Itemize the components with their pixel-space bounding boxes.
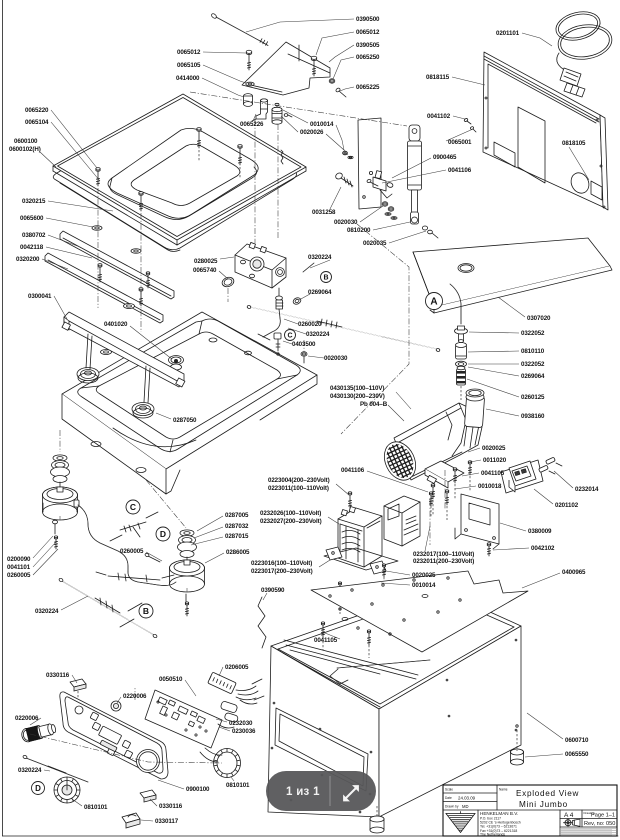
svg-text:0232026(100–110Volt): 0232026(100–110Volt) xyxy=(260,510,321,517)
svg-text:0286005: 0286005 xyxy=(226,549,250,556)
svg-text:0201102: 0201102 xyxy=(555,502,579,509)
svg-text:C: C xyxy=(287,333,292,340)
svg-text:0600102(H): 0600102(H) xyxy=(9,146,41,153)
svg-text:0220006: 0220006 xyxy=(123,693,147,700)
svg-text:0041105: 0041105 xyxy=(481,470,505,477)
svg-text:0232030: 0232030 xyxy=(229,720,253,727)
svg-text:0320200: 0320200 xyxy=(16,256,40,263)
svg-text:0232014: 0232014 xyxy=(575,486,599,493)
svg-text:0065001: 0065001 xyxy=(448,139,472,146)
svg-text:C: C xyxy=(130,502,136,512)
svg-text:0330116: 0330116 xyxy=(159,803,183,810)
svg-text:0010014: 0010014 xyxy=(412,582,436,589)
svg-text:0287032: 0287032 xyxy=(225,523,249,530)
svg-text:24.03.09: 24.03.09 xyxy=(458,796,476,801)
svg-text:0042118: 0042118 xyxy=(20,244,44,251)
svg-text:0260005: 0260005 xyxy=(7,572,31,579)
svg-text:0232027(200–230Volt): 0232027(200–230Volt) xyxy=(260,518,322,525)
svg-text:HENKELMAN B.V.: HENKELMAN B.V. xyxy=(480,811,518,816)
svg-text:0260125: 0260125 xyxy=(521,394,545,401)
svg-text:0011020: 0011020 xyxy=(483,457,507,464)
svg-text:0041101: 0041101 xyxy=(7,564,31,571)
svg-text:0223017(200–230Volt): 0223017(200–230Volt) xyxy=(251,568,313,575)
svg-text:0041105: 0041105 xyxy=(314,637,338,644)
svg-text:0065105: 0065105 xyxy=(177,62,201,69)
svg-text:Page 1–1: Page 1–1 xyxy=(591,813,615,819)
svg-text:0810110: 0810110 xyxy=(521,348,545,355)
svg-text:Exploded View: Exploded View xyxy=(516,789,579,798)
svg-text:0414000: 0414000 xyxy=(176,75,200,82)
svg-text:0287005: 0287005 xyxy=(225,512,249,519)
svg-text:0810101: 0810101 xyxy=(84,804,108,811)
svg-text:0320224: 0320224 xyxy=(306,331,330,338)
svg-text:0818115: 0818115 xyxy=(426,74,450,81)
svg-text:0041106: 0041106 xyxy=(448,167,472,174)
svg-text:0900465: 0900465 xyxy=(433,154,457,161)
svg-text:0065104: 0065104 xyxy=(25,119,49,126)
svg-text:0232011(200–230Volt): 0232011(200–230Volt) xyxy=(413,558,474,565)
svg-text:0010018: 0010018 xyxy=(478,483,502,490)
svg-text:MD: MD xyxy=(462,804,469,809)
svg-text:0600100: 0600100 xyxy=(14,138,38,145)
svg-text:0041106: 0041106 xyxy=(341,467,365,474)
svg-text:0065740: 0065740 xyxy=(193,267,217,274)
svg-text:0201101: 0201101 xyxy=(496,30,520,37)
svg-text:0810101: 0810101 xyxy=(226,782,250,789)
svg-text:0020026: 0020026 xyxy=(300,129,324,136)
svg-text:D: D xyxy=(160,529,166,539)
svg-text:0260020: 0260020 xyxy=(298,321,322,328)
svg-text:0403500: 0403500 xyxy=(292,341,316,348)
svg-text:The Netherlands: The Netherlands xyxy=(480,832,505,836)
svg-text:0330117: 0330117 xyxy=(155,818,179,825)
svg-text:0322052: 0322052 xyxy=(521,330,545,337)
svg-text:0320224: 0320224 xyxy=(308,254,332,261)
svg-text:0065012: 0065012 xyxy=(177,49,201,56)
svg-text:Name: Name xyxy=(499,788,508,792)
svg-text:0220006: 0220006 xyxy=(15,715,39,722)
svg-text:Rev, no: 050: Rev, no: 050 xyxy=(584,821,615,827)
svg-text:0065225: 0065225 xyxy=(356,84,380,91)
svg-text:0269064: 0269064 xyxy=(521,373,545,380)
svg-text:0020025: 0020025 xyxy=(412,572,436,579)
svg-text:0818105: 0818105 xyxy=(562,140,586,147)
svg-text:0269064: 0269064 xyxy=(308,289,332,296)
svg-text:0020035: 0020035 xyxy=(363,240,387,247)
svg-text:Scale: Scale xyxy=(445,788,453,792)
svg-text:0430130(200–230V): 0430130(200–230V) xyxy=(330,393,385,400)
svg-text:A 4: A 4 xyxy=(564,812,574,819)
svg-text:0232017(100–110Volt): 0232017(100–110Volt) xyxy=(413,551,474,558)
svg-text:0065600: 0065600 xyxy=(20,215,44,222)
svg-text:Pb 004–B: Pb 004–B xyxy=(360,401,388,408)
svg-text:0020030: 0020030 xyxy=(334,219,358,226)
svg-text:0020025: 0020025 xyxy=(482,445,506,452)
svg-text:0400965: 0400965 xyxy=(562,569,586,576)
svg-text:0320224: 0320224 xyxy=(18,767,42,774)
svg-text:0260005: 0260005 xyxy=(120,548,144,555)
svg-text:0206005: 0206005 xyxy=(225,664,249,671)
svg-text:0380009: 0380009 xyxy=(528,528,552,535)
svg-text:0320215: 0320215 xyxy=(22,198,46,205)
svg-text:D: D xyxy=(35,784,41,793)
svg-text:Date: Date xyxy=(445,796,452,800)
svg-text:0322052: 0322052 xyxy=(521,361,545,368)
svg-text:B: B xyxy=(143,606,149,616)
svg-text:0065012: 0065012 xyxy=(356,29,380,36)
svg-text:0401020: 0401020 xyxy=(104,321,128,328)
svg-text:0900100: 0900100 xyxy=(186,786,210,793)
svg-text:0390590: 0390590 xyxy=(261,587,285,594)
svg-text:0200090: 0200090 xyxy=(7,556,31,563)
svg-text:0300041: 0300041 xyxy=(28,293,52,300)
svg-text:0320224: 0320224 xyxy=(35,608,59,615)
svg-text:0330116: 0330116 xyxy=(46,672,70,679)
svg-text:0380702: 0380702 xyxy=(22,232,46,239)
svg-text:0050510: 0050510 xyxy=(159,676,183,683)
svg-text:0223004(200–230Volt): 0223004(200–230Volt) xyxy=(268,477,330,484)
svg-text:0042102: 0042102 xyxy=(531,545,555,552)
svg-text:0287050: 0287050 xyxy=(173,417,197,424)
svg-text:0223011(100–110Volt): 0223011(100–110Volt) xyxy=(268,485,329,492)
svg-text:B: B xyxy=(323,275,328,282)
svg-text:1 из 1: 1 из 1 xyxy=(286,786,320,798)
svg-text:Mini Jumbo: Mini Jumbo xyxy=(519,800,568,809)
svg-text:0287015: 0287015 xyxy=(225,533,249,540)
svg-text:0280025: 0280025 xyxy=(194,258,218,265)
svg-text:0390505: 0390505 xyxy=(356,42,380,49)
svg-text:0065220: 0065220 xyxy=(25,107,49,114)
svg-text:0810200: 0810200 xyxy=(347,227,371,234)
svg-text:0065550: 0065550 xyxy=(565,751,589,758)
svg-text:0031258: 0031258 xyxy=(312,209,336,216)
svg-text:0230036: 0230036 xyxy=(232,728,256,735)
svg-text:0430135(100–110V): 0430135(100–110V) xyxy=(330,385,384,392)
svg-text:0041102: 0041102 xyxy=(427,113,451,120)
svg-text:0010014: 0010014 xyxy=(310,121,334,128)
svg-text:0938160: 0938160 xyxy=(521,413,545,420)
svg-text:0390500: 0390500 xyxy=(356,16,380,23)
svg-text:A: A xyxy=(430,297,437,308)
svg-text:0020030: 0020030 xyxy=(324,355,348,362)
svg-text:0065226: 0065226 xyxy=(240,121,264,128)
svg-text:0600710: 0600710 xyxy=(565,737,589,744)
svg-text:Drawn by: Drawn by xyxy=(445,805,459,809)
svg-text:0223016(100–110Volt): 0223016(100–110Volt) xyxy=(251,560,312,567)
svg-text:0307020: 0307020 xyxy=(527,315,551,322)
svg-text:0065250: 0065250 xyxy=(356,54,380,61)
